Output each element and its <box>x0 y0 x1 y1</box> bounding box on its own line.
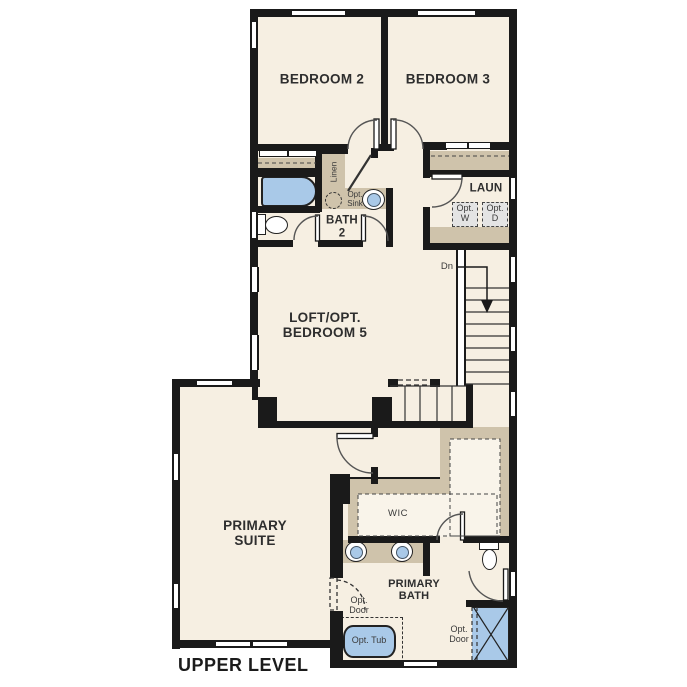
wall-under-tub <box>255 206 320 213</box>
wall-suite-east-lower <box>330 611 343 663</box>
loft-label-line2: BEDROOM 5 <box>283 326 367 341</box>
window-bath-south <box>404 660 437 668</box>
bath2-label-line2: 2 <box>326 227 358 240</box>
window-suite-south-1 <box>216 640 250 648</box>
primary-suite-label-line1: PRIMARY <box>223 519 287 534</box>
bedroom2-closet-door-right <box>288 150 317 157</box>
window-wc-east <box>509 572 517 596</box>
wall-bath2-north <box>257 168 319 177</box>
down-label: Dn <box>441 262 453 272</box>
window-loft-west-1 <box>250 267 259 292</box>
bath2-sink-basin <box>367 193 381 207</box>
wall-hall-north-b <box>430 379 440 387</box>
wall-tubroom-east <box>315 148 322 212</box>
wall-suite-west <box>172 379 180 649</box>
wall-bedroom3-south-b <box>490 142 510 150</box>
primary-toilet-bowl <box>482 549 497 570</box>
opt-dryer-label-line2: D <box>486 214 503 224</box>
wall-hall-nub <box>377 144 394 151</box>
opt-sink-label-line2: Sink <box>347 200 363 209</box>
wic-label: WIC <box>388 509 408 519</box>
wall-bedroom-divider <box>381 16 388 146</box>
wall-wic-top-line <box>348 477 440 479</box>
wall-loft-south <box>275 421 374 428</box>
wall-bath2-east <box>386 188 393 247</box>
bedroom3-closet-door-right <box>468 142 491 149</box>
window-suite-south-2 <box>253 640 287 648</box>
bath2-tub <box>261 176 317 207</box>
shower <box>472 606 510 663</box>
bath2-toilet-bowl <box>265 216 288 234</box>
wall-wc-south <box>466 600 512 607</box>
primary-sink1-basin <box>350 546 363 559</box>
floor-plan: BEDROOM 2 BEDROOM 3 BATH 2 LAUN LOFT/OPT… <box>0 0 687 687</box>
laundry-label: LAUN <box>470 183 503 196</box>
opt-dryer-label: Opt. D <box>486 204 503 224</box>
window-stair-east-2 <box>509 327 517 351</box>
wall-hall-north-a <box>388 379 398 387</box>
window-wic-east <box>509 392 517 416</box>
primary-suite-label-line2: SUITE <box>223 534 287 549</box>
bath2-opt-sink <box>325 192 342 209</box>
wall-linen-north <box>315 148 348 154</box>
wall-wc-west <box>423 540 430 576</box>
opt-door-bath-label: Opt. Door <box>349 596 369 616</box>
wall-laundry-north <box>428 170 510 177</box>
wic-interior-lower <box>358 494 497 537</box>
bath2-label-line1: BATH <box>326 214 358 227</box>
bedroom2-label: BEDROOM 2 <box>280 73 364 88</box>
wall-laundry-south <box>423 243 510 250</box>
primary-bath-label: PRIMARY BATH <box>388 578 440 602</box>
wall-linen-jamb <box>371 148 378 158</box>
wall-wic-south-b <box>463 536 510 543</box>
stair-stringer-wall <box>456 250 466 386</box>
wall-west-upper <box>250 9 258 387</box>
opt-tub-label: Opt. Tub <box>352 636 387 646</box>
bedroom3-closet-door-left <box>445 142 468 149</box>
opt-door-bath-label-line2: Door <box>349 606 369 616</box>
primary-bath-label-line2: BATH <box>388 590 440 602</box>
opt-washer-label: Opt. W <box>456 204 473 224</box>
wall-bath2-south-a <box>250 240 293 247</box>
bedroom3-closet-shelf <box>430 151 510 170</box>
primary-sink2-basin <box>396 546 409 559</box>
window-suite-north <box>197 379 232 387</box>
wall-suite-door-jamb-top <box>371 428 378 437</box>
wall-wic-corner <box>330 474 350 504</box>
wall-bath2-south-b <box>318 240 363 247</box>
window-bedroom2-north <box>292 9 345 17</box>
laundry-counter <box>430 227 510 243</box>
wall-wic-south-a <box>348 536 440 543</box>
loft-label-line1: LOFT/OPT. <box>283 311 367 326</box>
window-laundry-east <box>509 178 517 199</box>
wall-winder-south <box>392 421 470 428</box>
loft-label: LOFT/OPT. BEDROOM 5 <box>283 311 367 341</box>
window-suite-west-2 <box>172 584 180 608</box>
window-bath2-west <box>250 212 258 238</box>
primary-bath-label-line1: PRIMARY <box>388 578 440 590</box>
opt-door-shower-label-line2: Door <box>449 635 469 645</box>
window-bedroom2-west <box>250 22 258 48</box>
primary-suite-label: PRIMARY SUITE <box>223 519 287 549</box>
window-loft-west-2 <box>250 335 259 370</box>
bath2-label: BATH 2 <box>326 214 358 239</box>
bedroom3-label: BEDROOM 3 <box>406 73 490 88</box>
linen-label: Linen <box>329 162 338 183</box>
wall-loft-chunk-right <box>372 397 392 428</box>
opt-sink-label: Opt. Sink <box>347 191 363 209</box>
window-stair-east-1 <box>509 257 517 282</box>
window-bedroom3-north <box>418 9 475 17</box>
bedroom2-closet-door-left <box>259 150 288 157</box>
window-suite-west-1 <box>172 454 180 480</box>
wall-winder-east <box>466 384 473 428</box>
wall-suite-door-jamb-bottom <box>371 467 378 484</box>
opt-washer-label-line2: W <box>456 214 473 224</box>
opt-door-shower-label: Opt. Door <box>449 625 469 645</box>
page-title: UPPER LEVEL <box>178 655 309 676</box>
